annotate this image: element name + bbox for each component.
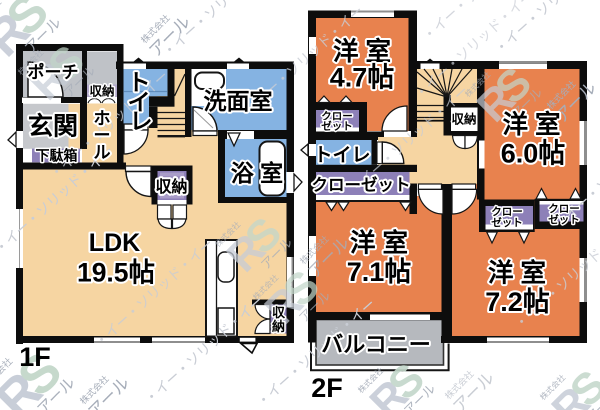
- svg-text:4.7帖: 4.7帖: [330, 63, 395, 93]
- svg-text:6.0帖: 6.0帖: [501, 139, 566, 169]
- svg-text:下駄箱: 下駄箱: [36, 148, 78, 164]
- svg-text:収納: 収納: [89, 84, 114, 99]
- svg-text:2F: 2F: [311, 373, 343, 403]
- svg-text:LDK: LDK: [89, 229, 140, 257]
- svg-text:クローゼット: クローゼット: [312, 175, 411, 195]
- svg-text:レ: レ: [130, 108, 153, 134]
- svg-text:収: 収: [272, 305, 286, 320]
- svg-text:トイレ: トイレ: [313, 145, 370, 166]
- svg-text:ゼット: ゼット: [548, 213, 580, 226]
- svg-text:洋 室: 洋 室: [350, 229, 408, 258]
- svg-text:ポーチ: ポーチ: [28, 62, 79, 82]
- svg-text:ル: ル: [94, 143, 111, 162]
- svg-text:洗面室: 洗面室: [204, 88, 273, 114]
- svg-text:洋 室: 洋 室: [502, 110, 560, 139]
- svg-text:バルコニー: バルコニー: [321, 332, 431, 357]
- svg-text:玄関: 玄関: [28, 112, 78, 141]
- svg-text:納: 納: [272, 319, 285, 334]
- svg-text:7.2帖: 7.2帖: [485, 287, 550, 317]
- svg-text:収納: 収納: [451, 112, 476, 127]
- svg-text:洋 室: 洋 室: [488, 259, 546, 288]
- svg-text:1F: 1F: [19, 342, 51, 372]
- svg-text:収納: 収納: [155, 177, 187, 196]
- svg-text:7.1帖: 7.1帖: [347, 257, 412, 287]
- svg-text:ゼット: ゼット: [491, 216, 523, 229]
- svg-text:ゼット: ゼット: [321, 120, 353, 133]
- svg-text:19.5帖: 19.5帖: [77, 258, 155, 288]
- svg-text:浴 室: 浴 室: [231, 160, 283, 186]
